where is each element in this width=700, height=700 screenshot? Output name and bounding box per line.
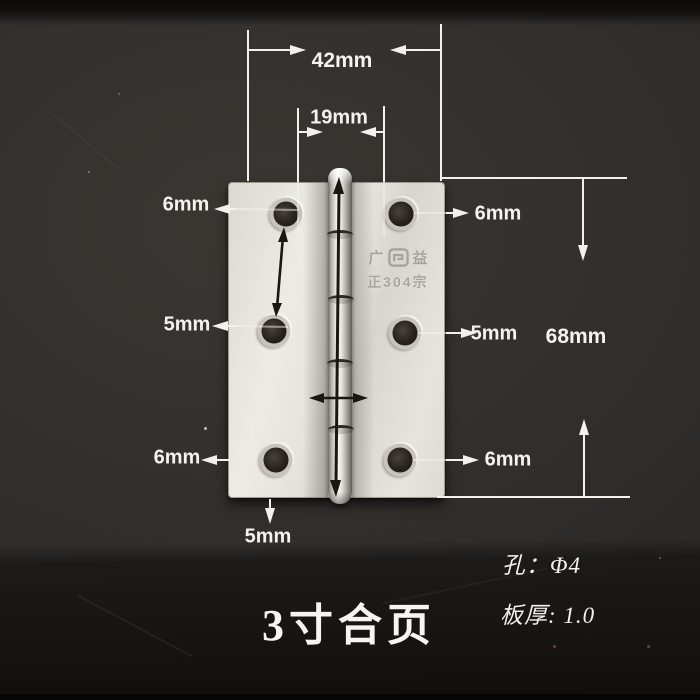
label-width-42mm: 42mm [312, 49, 373, 73]
product-photo-3inch-hinge: 广 益 正304宗 [0, 0, 700, 700]
dust-speck [118, 93, 120, 95]
label-edge-bottom-left: 6mm [154, 447, 201, 470]
stamp-char-left: 广 [368, 247, 383, 268]
brand-stamp: 广 益 正304宗 [361, 246, 435, 292]
screw-hole-bottom-left [260, 444, 293, 477]
screw-hole-mid-left [258, 315, 291, 348]
brand-stamp-row: 广 益 [361, 246, 435, 269]
knuckle-joint [328, 295, 354, 304]
label-width-19mm: 19mm [310, 107, 368, 130]
spec-plate-thickness: 板厚: 1.0 [500, 596, 595, 630]
label-edge-bottom-right: 6mm [485, 449, 532, 472]
label-edge-top-right: 6mm [475, 203, 522, 226]
label-edge-mid-right: 5mm [471, 323, 518, 346]
pin-bottom-cap [329, 492, 351, 504]
label-edge-top-left: 6mm [163, 194, 210, 217]
hinge-fold-shadow-right [352, 182, 374, 498]
knuckle-joint [327, 230, 353, 239]
dust-speck [659, 557, 661, 559]
pin-top-cap [328, 168, 352, 184]
label-height-68mm: 68mm [546, 325, 607, 349]
brand-logo-icon [387, 246, 410, 269]
stamp-char-right: 益 [413, 247, 428, 268]
label-edge-bottom: 5mm [245, 526, 292, 549]
background-bottom-edge [0, 694, 700, 700]
screw-hole-mid-right [389, 317, 422, 350]
dust-speck [647, 645, 650, 648]
dust-speck [88, 171, 90, 173]
product-title: 3寸合页 [262, 589, 436, 653]
label-edge-mid-left: 5mm [164, 314, 211, 337]
dust-speck [204, 427, 207, 430]
screw-hole-bottom-right [384, 444, 417, 477]
hinge-pin-barrel [328, 168, 352, 504]
dust-speck [553, 645, 556, 648]
spec-hole-diameter: 孔：Φ4 [502, 546, 581, 580]
stamp-certification-text: 正304宗 [361, 272, 435, 292]
background-top-dark-band [0, 0, 700, 26]
screw-hole-top-right [385, 198, 418, 231]
hinge-fold-shadow-left [303, 182, 328, 498]
knuckle-joint [327, 359, 353, 368]
knuckle-joint [328, 425, 354, 434]
screw-hole-top-left [270, 198, 303, 231]
